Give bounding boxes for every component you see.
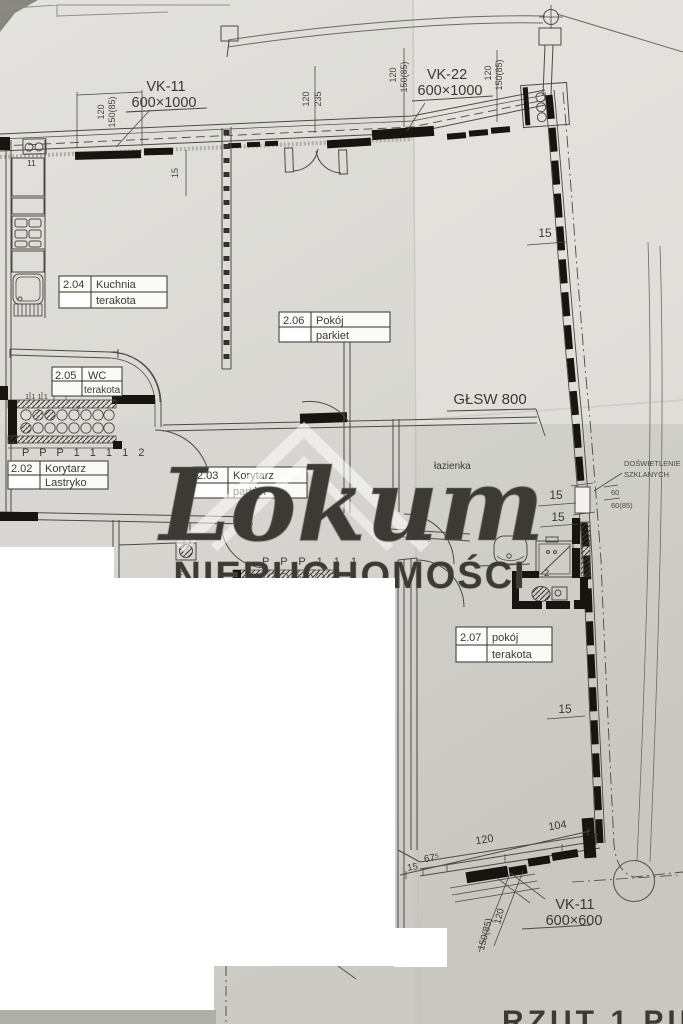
redaction-rect-small <box>394 928 447 967</box>
dim-15-right4: 15 <box>558 702 572 716</box>
dim-15-right3: 15 <box>551 510 565 524</box>
redaction-rect-left <box>0 547 114 1010</box>
room-name: WC <box>88 370 106 382</box>
room-floor: terakota <box>96 295 137 307</box>
dim-15-top: 15 <box>170 168 180 178</box>
floor-plan-drawing: VK-11 600×1000 VK-22 600×1000 VK-11 600×… <box>0 0 683 1024</box>
room-label-2-02: 2.02 Korytarz Lastryko <box>8 461 108 489</box>
dim-120-a: 120 <box>96 104 106 119</box>
drainboard <box>14 304 42 316</box>
scanned-floor-plan-page: VK-11 600×1000 VK-22 600×1000 VK-11 600×… <box>0 0 683 1024</box>
mark-1111: 1 1 1 1 <box>25 392 48 401</box>
dim-150-c: 150(85) <box>399 61 409 92</box>
room-name: Korytarz <box>45 463 86 475</box>
radiator-marks-wc: P P P 1 1 1 1 2 <box>22 447 148 459</box>
vent-label-vk11-top: VK-11 <box>146 79 185 95</box>
room-floor: parkiet <box>316 330 349 342</box>
dim-235: 235 <box>313 91 323 106</box>
dim-120-b: 120 <box>301 91 311 106</box>
room-number: 2.04 <box>63 279 84 291</box>
daylight-annotation-line2: SZKLANYCH <box>624 470 669 479</box>
room-number: 2.05 <box>55 370 76 382</box>
room-floor: Lastryko <box>45 477 87 489</box>
dim-60-85: 60(85) <box>611 501 633 510</box>
floor-swatch <box>281 329 309 340</box>
redaction-overlays <box>0 547 447 1024</box>
fold-tone-top-right <box>414 0 683 424</box>
dim-120-d: 120 <box>483 65 493 80</box>
mark-11: 11 <box>27 158 36 168</box>
vent-size-vk11-bottom: 600×600 <box>546 913 603 929</box>
vent-label-vk11-bottom: VK-11 <box>555 897 594 913</box>
floor-swatch <box>61 294 89 306</box>
dim-150-d: 150(85) <box>494 59 504 90</box>
dim-15-right2: 15 <box>549 488 563 502</box>
redaction-rect-center <box>213 578 395 966</box>
room-number: 2.06 <box>283 315 304 327</box>
drawing-title: RZUT 1 PIĘTRA <box>502 1005 683 1024</box>
room-name: pokój <box>492 632 518 644</box>
room-name: Pokój <box>316 315 344 327</box>
vent-size-vk11-top: 600×1000 <box>132 95 197 111</box>
vent-label-vk22: VK-22 <box>427 67 467 83</box>
glsw-annotation: GŁSW 800 <box>453 391 526 408</box>
room-floor: terakota <box>84 385 121 396</box>
dim-15-bottom: 15 <box>407 861 419 874</box>
dim-150-a: 150(85) <box>107 96 117 127</box>
floor-swatch <box>10 477 38 487</box>
floor-swatch <box>458 647 485 660</box>
watermark-brand: Lokum <box>157 446 545 564</box>
room-label-2-07: 2.07 pokój terakota <box>456 627 552 662</box>
mark-2-shower: 2 <box>544 568 549 579</box>
redaction-rect-mid-left <box>113 578 214 1010</box>
dim-60: 60 <box>611 488 619 497</box>
table-edge-strip <box>0 1010 216 1024</box>
room-label-2-05: 2.05 WC terakota <box>52 367 122 396</box>
room-label-2-04: 2.04 Kuchnia terakota <box>59 276 167 308</box>
dim-15-right1: 15 <box>538 226 552 240</box>
mark-2-wc: 2 <box>76 404 80 413</box>
vent-size-vk22: 600×1000 <box>418 83 483 99</box>
watermark: Lokum NIERUCHOMOŚCI <box>157 430 545 597</box>
dim-120-c: 120 <box>388 67 398 82</box>
room-floor: terakota <box>492 649 533 661</box>
room-label-2-06: 2.06 Pokój parkiet <box>279 312 390 342</box>
room-number: 2.07 <box>460 632 481 644</box>
room-number: 2.02 <box>11 463 32 475</box>
glass-daylight-window <box>575 487 590 513</box>
room-name: Kuchnia <box>96 279 137 291</box>
daylight-annotation-line1: DOŚWIETLENIE <box>624 459 681 468</box>
